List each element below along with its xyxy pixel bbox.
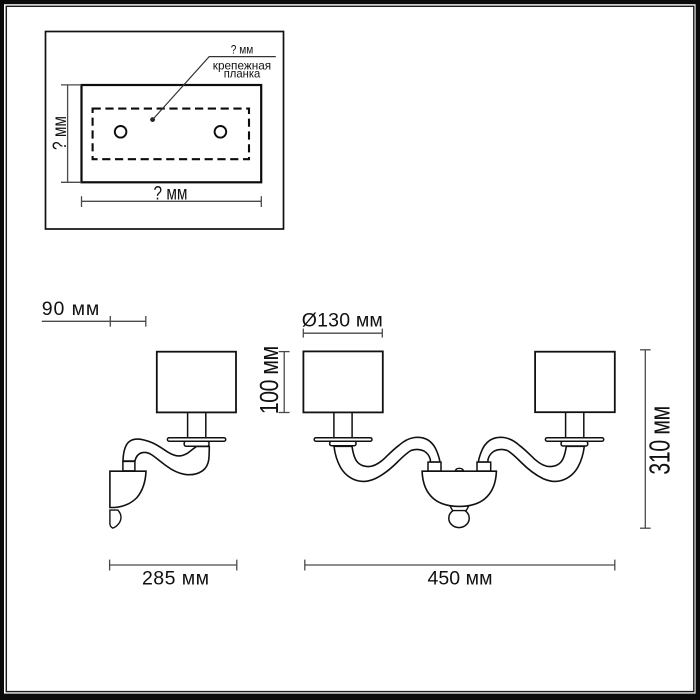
svg-text:450 мм: 450 мм <box>428 567 493 589</box>
svg-text:100 мм: 100 мм <box>255 346 285 415</box>
svg-text:? мм: ? мм <box>49 116 71 150</box>
svg-text:? мм: ? мм <box>231 44 254 57</box>
svg-text:90 мм: 90 мм <box>42 298 100 320</box>
svg-text:285 мм: 285 мм <box>142 567 209 589</box>
svg-text:310 мм: 310 мм <box>645 406 677 475</box>
svg-text:? мм: ? мм <box>154 182 188 204</box>
svg-text:Ø130 мм: Ø130 мм <box>302 310 383 332</box>
svg-text:планка: планка <box>224 68 261 81</box>
